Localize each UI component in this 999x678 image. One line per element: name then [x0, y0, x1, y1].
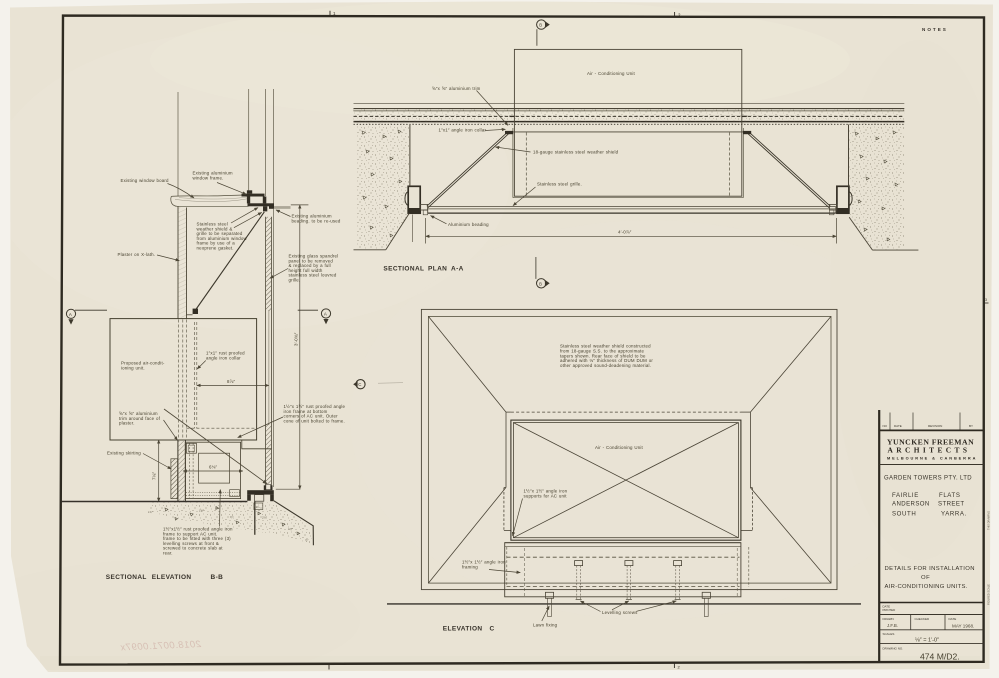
svg-text:Lawn fixing: Lawn fixing: [533, 622, 558, 627]
svg-text:THIS DRAWING: THIS DRAWING: [987, 511, 991, 530]
svg-text:plaster.: plaster.: [119, 421, 135, 426]
svg-text:CHECKED: CHECKED: [915, 617, 931, 621]
svg-text:MAY 1968.: MAY 1968.: [952, 624, 974, 629]
svg-text:SOUTH: SOUTH: [892, 511, 916, 518]
svg-text:474 M/D2.: 474 M/D2.: [920, 652, 960, 662]
svg-text:ANDERSON: ANDERSON: [892, 501, 930, 508]
svg-text:ELEVATION: ELEVATION: [443, 625, 483, 632]
svg-text:B-B: B-B: [211, 574, 224, 581]
svg-text:other approved sound-deadening: other approved sound-deadening material.: [560, 363, 651, 368]
svg-text:C: C: [358, 382, 361, 387]
svg-text:framing: framing: [462, 565, 478, 570]
svg-text:GARDEN TOWERS PTY. LTD: GARDEN TOWERS PTY. LTD: [884, 476, 972, 482]
svg-text:AIR-CONDITIONING UNITS.: AIR-CONDITIONING UNITS.: [885, 584, 968, 590]
svg-text:YARRA.: YARRA.: [941, 511, 967, 518]
svg-text:Air - Conditioning Unit: Air - Conditioning Unit: [595, 445, 643, 450]
svg-text:DETAILS FOR INSTALLATION: DETAILS FOR INSTALLATION: [885, 566, 975, 572]
svg-text:DRAWN: DRAWN: [883, 617, 894, 621]
svg-text:STREET: STREET: [938, 501, 964, 508]
svg-text:ioning unit.: ioning unit.: [121, 366, 145, 371]
svg-text:Plaster on X-lath.: Plaster on X-lath.: [118, 252, 156, 257]
svg-text:PRINTED: PRINTED: [883, 608, 896, 612]
svg-text:angle iron collar: angle iron collar: [206, 356, 241, 361]
svg-text:SCALES: SCALES: [883, 632, 895, 636]
svg-text:C: C: [490, 625, 495, 632]
svg-text:neoprene gasket.: neoprene gasket.: [197, 246, 234, 251]
svg-text:B: B: [539, 23, 542, 28]
svg-text:7¼″: 7¼″: [152, 472, 157, 480]
svg-text:SECTIONAL: SECTIONAL: [383, 265, 424, 272]
svg-text:DRAWING NO.: DRAWING NO.: [883, 647, 904, 651]
svg-text:FAIRLIE: FAIRLIE: [892, 492, 919, 499]
svg-text:window frame.: window frame.: [193, 176, 224, 181]
svg-text:3: 3: [985, 298, 987, 302]
svg-text:Existing window board: Existing window board: [121, 178, 170, 183]
svg-text:Air - Conditioning Unit: Air - Conditioning Unit: [587, 71, 635, 76]
svg-text:Aluminium beading: Aluminium beading: [448, 222, 489, 227]
svg-text:BY: BY: [969, 424, 973, 428]
svg-text:NOTES: NOTES: [922, 27, 948, 32]
svg-text:⅛″ = 1′-0″: ⅛″ = 1′-0″: [915, 638, 939, 644]
svg-text:FIGURED SCALE: FIGURED SCALE: [987, 584, 991, 605]
svg-text:2⅞″: 2⅞″: [261, 516, 268, 520]
svg-text:⅝″x ⅝″ aluminium trim: ⅝″x ⅝″ aluminium trim: [432, 86, 481, 91]
svg-text:beading. to be re-used: beading. to be re-used: [292, 218, 341, 223]
svg-text:rear.: rear.: [163, 551, 173, 556]
svg-text:4′-0⅞″: 4′-0⅞″: [618, 230, 632, 235]
svg-text:Levelling screws: Levelling screws: [602, 610, 638, 615]
svg-text:MELBOURNE & CANBERRA: MELBOURNE & CANBERRA: [887, 456, 977, 461]
svg-text:supports for AC unit: supports for AC unit: [524, 494, 568, 499]
svg-text:A: A: [69, 312, 72, 317]
svg-text:OF: OF: [921, 575, 930, 581]
svg-text:NO: NO: [883, 424, 888, 428]
svg-text:6⅛″: 6⅛″: [209, 465, 217, 470]
svg-text:cone of unit bolted to frame.: cone of unit bolted to frame.: [284, 418, 345, 423]
svg-text:PLAN: PLAN: [428, 265, 447, 272]
svg-text:J.F.B.: J.F.B.: [887, 623, 898, 628]
svg-text:FLATS: FLATS: [939, 492, 961, 499]
svg-text:Stainless steel grille.: Stainless steel grille.: [537, 182, 582, 187]
svg-text:3′-0¾″: 3′-0¾″: [294, 332, 299, 346]
svg-text:B: B: [539, 281, 542, 286]
svg-text:A-A: A-A: [451, 265, 464, 272]
svg-text:REVISION: REVISION: [928, 424, 942, 428]
svg-text:8⅞″: 8⅞″: [227, 379, 235, 384]
svg-text:ARCHITECTS: ARCHITECTS: [888, 446, 971, 455]
svg-text:ELEVATION: ELEVATION: [152, 574, 192, 581]
svg-text:grille.: grille.: [289, 278, 301, 283]
svg-text:18-gauge stainless steel weath: 18-gauge stainless steel weather shield: [533, 150, 619, 155]
svg-text:SECTIONAL: SECTIONAL: [106, 574, 147, 581]
svg-text:1″x1″ angle iron collar: 1″x1″ angle iron collar: [439, 128, 487, 133]
svg-text:DATE: DATE: [949, 617, 957, 621]
svg-text:A: A: [324, 312, 327, 317]
svg-text:DATE: DATE: [894, 424, 902, 428]
svg-text:Existing skirting: Existing skirting: [107, 451, 141, 456]
